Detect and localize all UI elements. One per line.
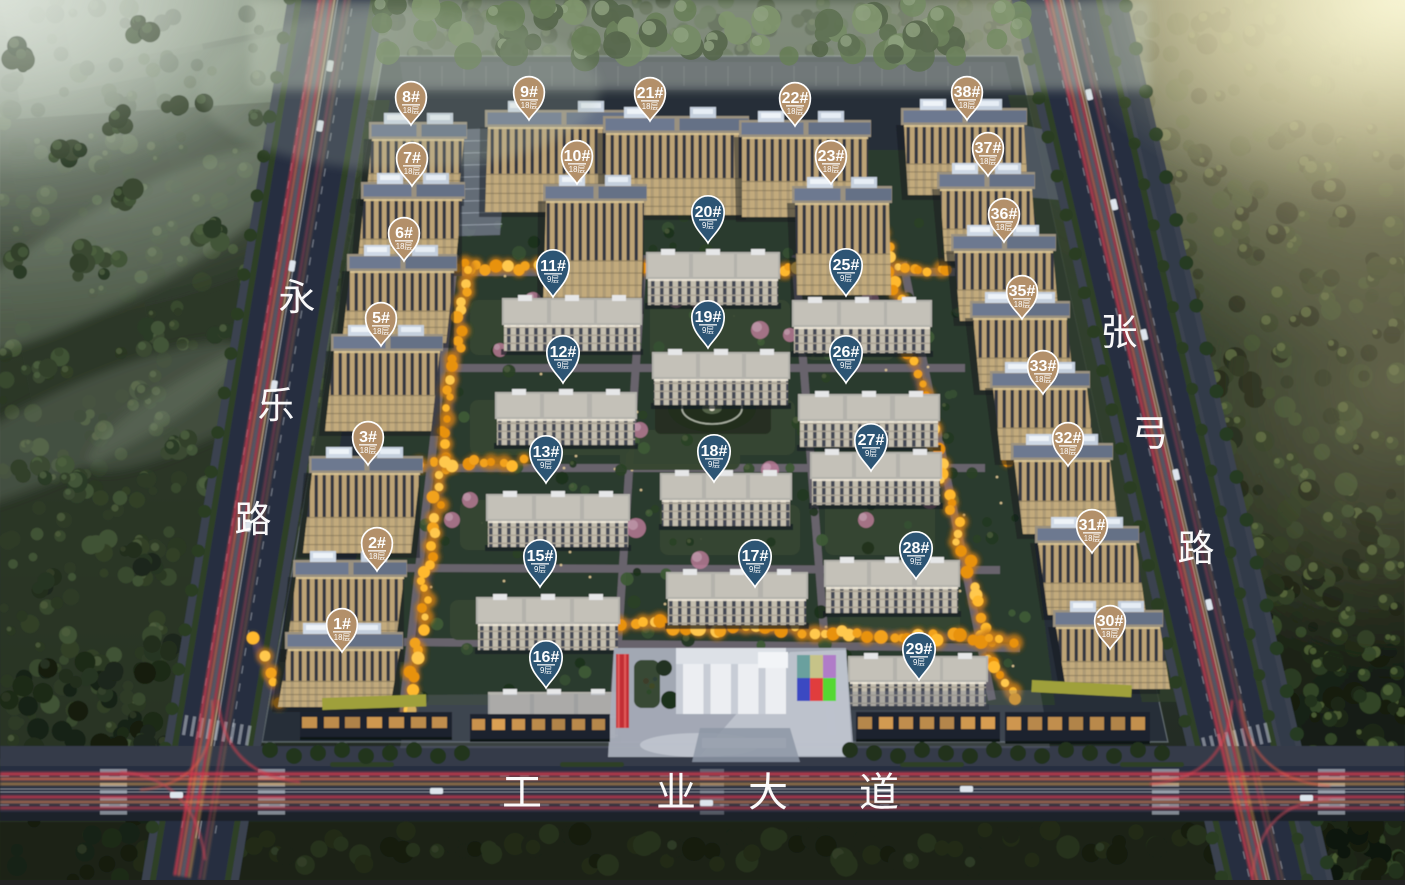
svg-text:张: 张 — [1101, 312, 1138, 353]
svg-text:6#: 6# — [395, 225, 413, 242]
svg-text:30#: 30# — [1097, 613, 1124, 630]
svg-text:19#: 19# — [695, 309, 722, 326]
svg-text:18层: 18层 — [959, 101, 976, 110]
svg-text:18层: 18层 — [360, 446, 377, 455]
svg-text:18层: 18层 — [403, 106, 420, 115]
svg-text:18#: 18# — [701, 443, 728, 460]
svg-text:16#: 16# — [533, 649, 560, 666]
svg-text:25#: 25# — [833, 257, 860, 274]
svg-text:18层: 18层 — [1084, 534, 1101, 543]
svg-text:2#: 2# — [368, 535, 386, 552]
svg-text:35#: 35# — [1009, 283, 1036, 300]
svg-text:18层: 18层 — [823, 165, 840, 174]
svg-text:36#: 36# — [991, 206, 1018, 223]
svg-text:18层: 18层 — [996, 223, 1013, 232]
svg-text:8#: 8# — [402, 89, 420, 106]
svg-text:9层: 9层 — [913, 658, 925, 667]
svg-text:13#: 13# — [533, 444, 560, 461]
svg-text:3#: 3# — [359, 429, 377, 446]
svg-text:9层: 9层 — [534, 565, 546, 574]
svg-text:5#: 5# — [372, 310, 390, 327]
svg-text:18层: 18层 — [396, 242, 413, 251]
svg-text:9层: 9层 — [540, 666, 552, 675]
svg-text:11#: 11# — [540, 258, 566, 275]
svg-text:9层: 9层 — [540, 461, 552, 470]
svg-text:道: 道 — [859, 771, 899, 815]
svg-text:20#: 20# — [695, 204, 722, 221]
svg-text:1#: 1# — [333, 616, 351, 633]
svg-text:18层: 18层 — [1035, 375, 1052, 384]
svg-text:9层: 9层 — [702, 326, 714, 335]
svg-text:乐: 乐 — [258, 385, 295, 426]
svg-text:31#: 31# — [1079, 517, 1106, 534]
svg-text:18层: 18层 — [569, 165, 586, 174]
svg-text:9层: 9层 — [557, 361, 569, 370]
svg-text:26#: 26# — [833, 344, 860, 361]
svg-text:18层: 18层 — [334, 633, 351, 642]
svg-text:18层: 18层 — [404, 167, 421, 176]
svg-text:18层: 18层 — [521, 101, 538, 110]
svg-text:大: 大 — [748, 771, 788, 815]
svg-text:33#: 33# — [1030, 358, 1057, 375]
svg-text:路: 路 — [235, 499, 272, 540]
svg-text:业: 业 — [656, 771, 696, 815]
svg-text:10#: 10# — [564, 148, 591, 165]
svg-text:永: 永 — [279, 277, 316, 318]
svg-text:18层: 18层 — [369, 552, 386, 561]
svg-text:12#: 12# — [550, 344, 577, 361]
svg-text:7#: 7# — [403, 150, 421, 167]
svg-text:18层: 18层 — [1060, 447, 1077, 456]
svg-text:路: 路 — [1178, 528, 1215, 569]
svg-text:弓: 弓 — [1132, 413, 1169, 454]
svg-text:18层: 18层 — [787, 107, 804, 116]
svg-text:9层: 9层 — [547, 275, 559, 284]
svg-text:28#: 28# — [903, 540, 930, 557]
svg-text:9层: 9层 — [840, 274, 852, 283]
svg-text:18层: 18层 — [1102, 630, 1119, 639]
svg-text:27#: 27# — [858, 432, 885, 449]
svg-text:9层: 9层 — [702, 221, 714, 230]
svg-text:17#: 17# — [742, 548, 769, 565]
svg-text:18层: 18层 — [373, 327, 390, 336]
svg-text:9#: 9# — [520, 84, 538, 101]
svg-text:9层: 9层 — [910, 557, 922, 566]
svg-text:18层: 18层 — [1014, 300, 1031, 309]
svg-text:22#: 22# — [782, 90, 809, 107]
svg-text:32#: 32# — [1055, 430, 1082, 447]
svg-text:18层: 18层 — [980, 157, 997, 166]
svg-text:21#: 21# — [637, 85, 664, 102]
svg-text:37#: 37# — [975, 140, 1002, 157]
svg-text:23#: 23# — [818, 148, 845, 165]
svg-text:9层: 9层 — [865, 449, 877, 458]
svg-text:15#: 15# — [527, 548, 554, 565]
svg-text:9层: 9层 — [708, 460, 720, 469]
svg-text:18层: 18层 — [642, 102, 659, 111]
svg-text:9层: 9层 — [749, 565, 761, 574]
svg-text:工: 工 — [502, 771, 542, 815]
svg-text:29#: 29# — [906, 641, 933, 658]
svg-text:9层: 9层 — [840, 361, 852, 370]
svg-text:38#: 38# — [954, 84, 981, 101]
